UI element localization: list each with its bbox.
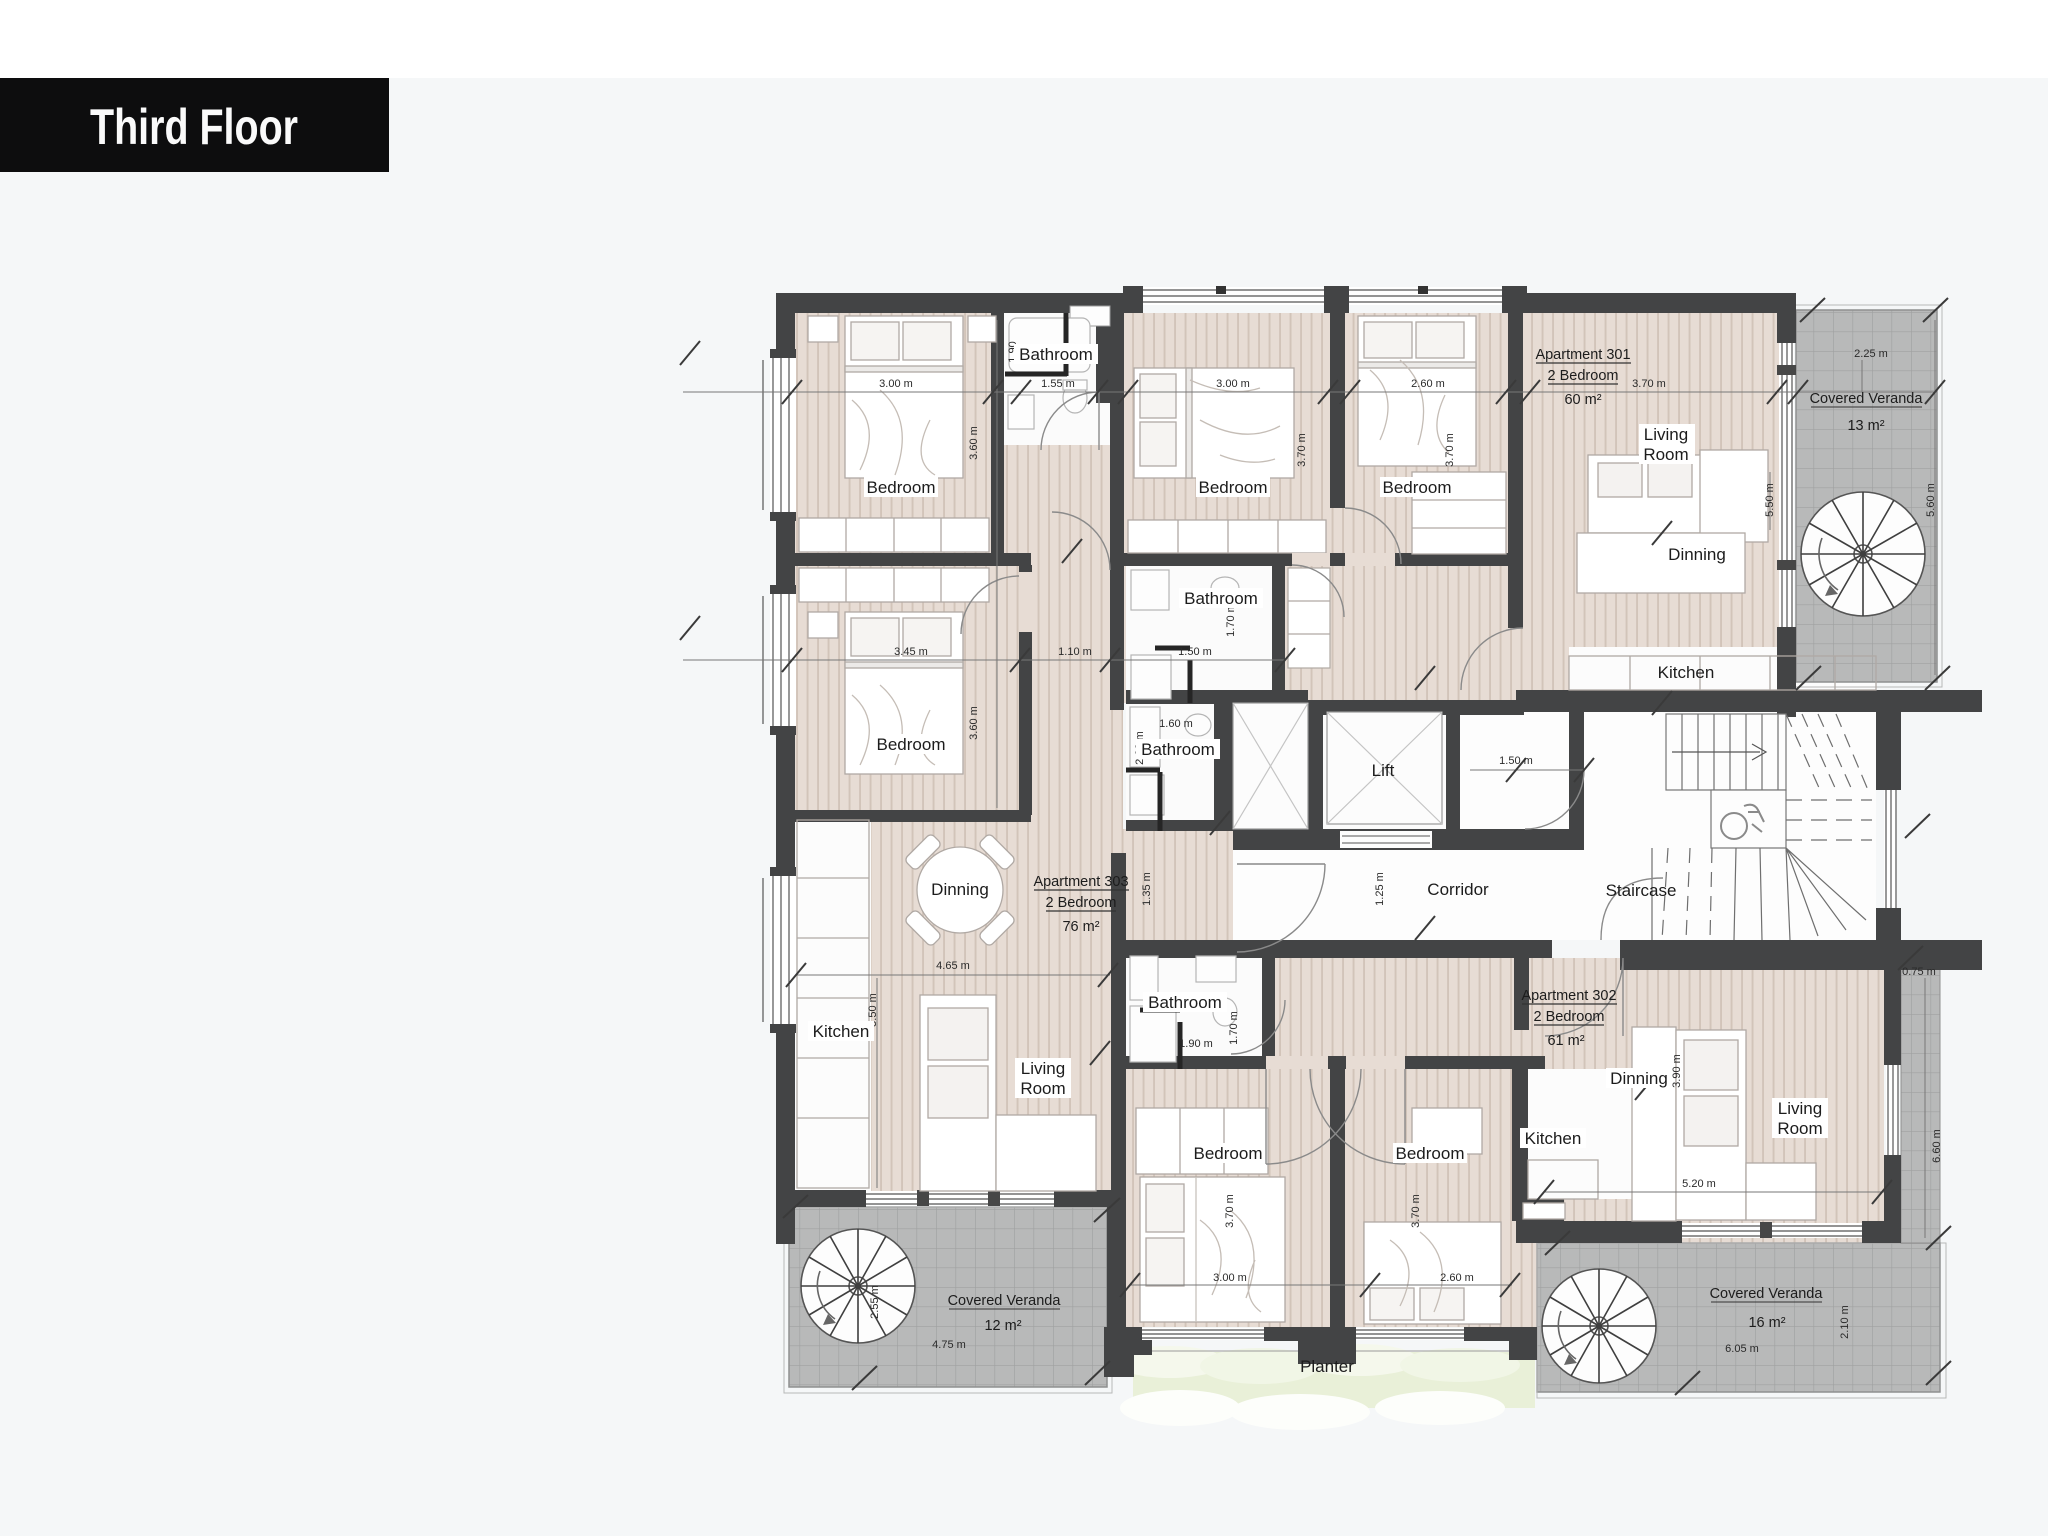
svg-text:Kitchen: Kitchen: [813, 1022, 870, 1041]
svg-text:2 Bedroom: 2 Bedroom: [1046, 895, 1117, 911]
svg-text:Covered Veranda: Covered Veranda: [948, 1293, 1062, 1309]
svg-text:Room: Room: [1020, 1079, 1065, 1098]
svg-text:13 m²: 13 m²: [1847, 418, 1884, 434]
svg-text:3.70 m: 3.70 m: [1224, 1194, 1236, 1228]
svg-text:76 m²: 76 m²: [1062, 919, 1099, 935]
svg-text:16 m²: 16 m²: [1748, 1315, 1785, 1331]
svg-text:5.50 m: 5.50 m: [1764, 483, 1776, 517]
svg-text:Planter: Planter: [1300, 1357, 1354, 1376]
svg-text:Dinning: Dinning: [931, 880, 989, 899]
svg-text:2.60 m: 2.60 m: [1411, 378, 1445, 390]
svg-text:Covered Veranda: Covered Veranda: [1710, 1286, 1824, 1302]
svg-text:Bedroom: Bedroom: [867, 478, 936, 497]
svg-text:1.25 m: 1.25 m: [1374, 872, 1386, 906]
svg-text:Bathroom: Bathroom: [1148, 993, 1222, 1012]
svg-text:2.10 m: 2.10 m: [1839, 1305, 1851, 1339]
svg-text:Bedroom: Bedroom: [877, 735, 946, 754]
svg-text:1.90 m: 1.90 m: [1179, 1038, 1213, 1050]
svg-text:3.60 m: 3.60 m: [968, 426, 980, 460]
svg-text:3.00 m: 3.00 m: [1216, 378, 1250, 390]
svg-text:1.10 m: 1.10 m: [1058, 646, 1092, 658]
svg-text:1.35 m: 1.35 m: [1141, 872, 1153, 906]
svg-text:3.45 m: 3.45 m: [894, 646, 928, 658]
svg-text:Dinning: Dinning: [1668, 545, 1726, 564]
svg-text:Corridor: Corridor: [1427, 880, 1489, 899]
svg-text:3.90 m: 3.90 m: [1671, 1054, 1683, 1088]
svg-text:1.70 m: 1.70 m: [1228, 1011, 1240, 1045]
svg-text:2.25 m: 2.25 m: [1854, 348, 1888, 360]
svg-text:5.60 m: 5.60 m: [1925, 483, 1937, 517]
svg-text:2.55 m: 2.55 m: [869, 1285, 881, 1319]
svg-text:Living: Living: [1021, 1059, 1065, 1078]
svg-text:2.60 m: 2.60 m: [1440, 1272, 1474, 1284]
svg-text:1.60 m: 1.60 m: [1159, 718, 1193, 730]
svg-text:Bedroom: Bedroom: [1194, 1144, 1263, 1163]
svg-text:1.70 m: 1.70 m: [1225, 603, 1237, 637]
svg-text:60 m²: 60 m²: [1564, 392, 1601, 408]
svg-text:3.00 m: 3.00 m: [1213, 1272, 1247, 1284]
svg-text:3.60 m: 3.60 m: [968, 706, 980, 740]
svg-text:6.05 m: 6.05 m: [1725, 1343, 1759, 1355]
svg-text:Living: Living: [1778, 1099, 1822, 1118]
svg-text:Living: Living: [1644, 425, 1688, 444]
svg-text:3.70 m: 3.70 m: [1410, 1194, 1422, 1228]
svg-text:2 Bedroom: 2 Bedroom: [1534, 1009, 1605, 1025]
svg-text:4.75 m: 4.75 m: [932, 1339, 966, 1351]
svg-text:61 m²: 61 m²: [1547, 1033, 1584, 1049]
svg-text:3.70 m: 3.70 m: [1296, 433, 1308, 467]
svg-text:Bathroom: Bathroom: [1019, 345, 1093, 364]
svg-text:Staircase: Staircase: [1606, 881, 1677, 900]
svg-text:Bedroom: Bedroom: [1383, 478, 1452, 497]
svg-text:Kitchen: Kitchen: [1525, 1129, 1582, 1148]
svg-text:Lift: Lift: [1372, 761, 1395, 780]
svg-text:3.70 m: 3.70 m: [1632, 378, 1666, 390]
svg-text:Room: Room: [1643, 445, 1688, 464]
svg-text:2 Bedroom: 2 Bedroom: [1548, 368, 1619, 384]
svg-text:1.55 m: 1.55 m: [1041, 378, 1075, 390]
svg-text:5.20 m: 5.20 m: [1682, 1178, 1716, 1190]
svg-text:Bathroom: Bathroom: [1141, 740, 1215, 759]
svg-text:1.50 m: 1.50 m: [1499, 755, 1533, 767]
svg-text:0.75 m: 0.75 m: [1902, 966, 1936, 978]
svg-text:Third Floor: Third Floor: [90, 99, 298, 155]
svg-text:12 m²: 12 m²: [984, 1318, 1021, 1334]
svg-text:4.65 m: 4.65 m: [936, 960, 970, 972]
svg-text:Covered Veranda: Covered Veranda: [1810, 391, 1924, 407]
svg-text:Apartment 301: Apartment 301: [1535, 347, 1630, 363]
svg-text:3.70 m: 3.70 m: [1444, 433, 1456, 467]
svg-text:3.00 m: 3.00 m: [879, 378, 913, 390]
svg-text:Apartment 302: Apartment 302: [1521, 988, 1616, 1004]
svg-text:Bedroom: Bedroom: [1199, 478, 1268, 497]
svg-text:Bathroom: Bathroom: [1184, 589, 1258, 608]
svg-text:Room: Room: [1777, 1119, 1822, 1138]
svg-text:Apartment 303: Apartment 303: [1033, 874, 1128, 890]
svg-text:Dinning: Dinning: [1610, 1069, 1668, 1088]
svg-text:1.50 m: 1.50 m: [1178, 646, 1212, 658]
svg-text:Bedroom: Bedroom: [1396, 1144, 1465, 1163]
svg-text:Kitchen: Kitchen: [1658, 663, 1715, 682]
svg-text:6.60 m: 6.60 m: [1931, 1129, 1943, 1163]
